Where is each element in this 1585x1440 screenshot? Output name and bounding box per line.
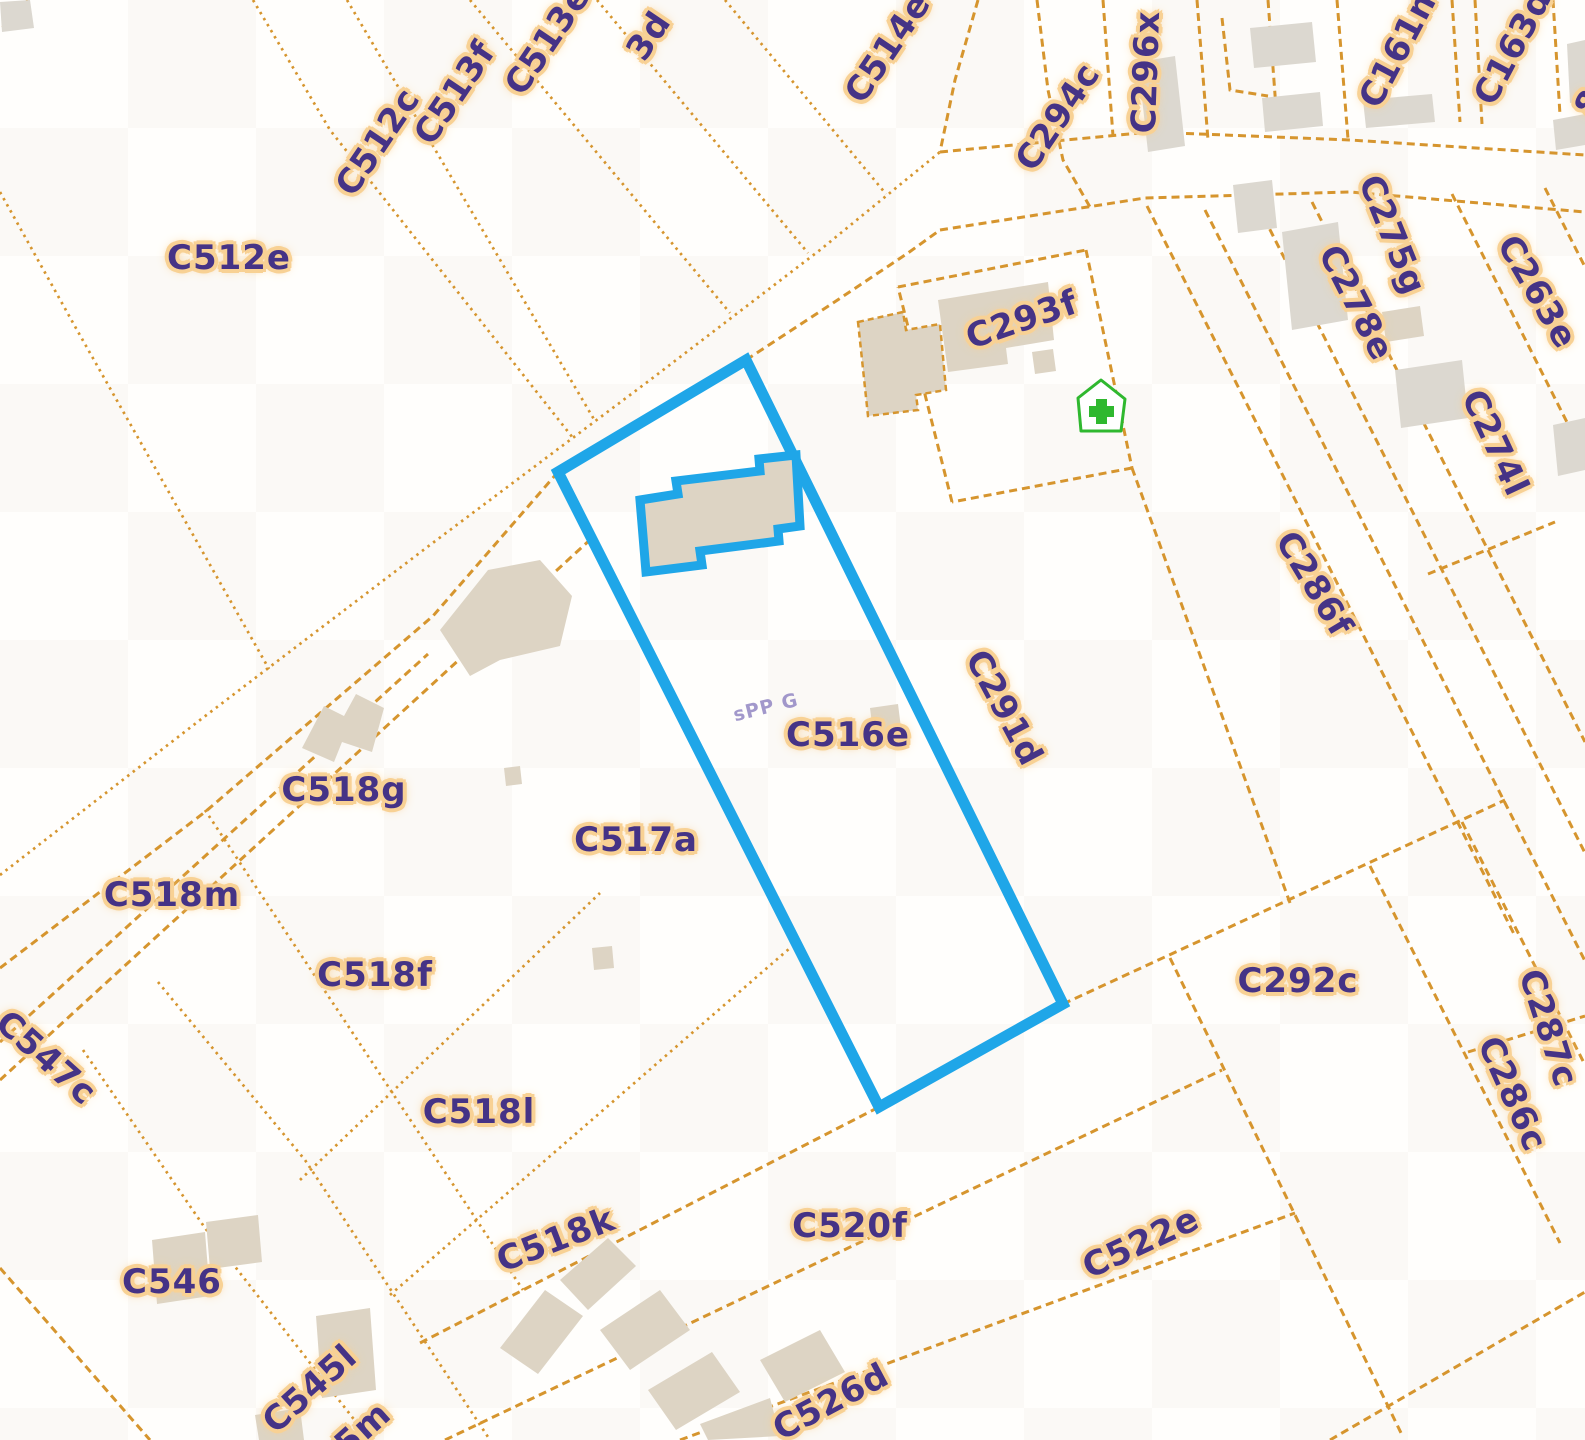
building-footprint bbox=[600, 1290, 690, 1370]
parcel-label: C520f bbox=[792, 1209, 908, 1243]
map-canvas[interactable]: sPP GC512eC512cC513fC513e3dC514eC294cC29… bbox=[0, 0, 1585, 1440]
parcel-boundary-line bbox=[1452, 0, 1460, 122]
parcel-boundary-line bbox=[1197, 0, 1208, 140]
parcel-boundary-line bbox=[300, 893, 600, 1180]
building-footprint bbox=[1250, 22, 1316, 68]
building-footprint bbox=[1262, 92, 1323, 132]
parcel-label: C516e bbox=[786, 718, 910, 752]
poi-cross-bar bbox=[1089, 406, 1114, 417]
parcel-boundary-line bbox=[1330, 1292, 1585, 1440]
building-footprint bbox=[858, 312, 946, 416]
parcel-boundary-line bbox=[470, 0, 730, 313]
parcel-label: C518f bbox=[317, 958, 433, 992]
building-footprint bbox=[440, 560, 572, 676]
parcel-boundary-line bbox=[1103, 0, 1113, 136]
building-footprint bbox=[302, 694, 384, 762]
parcel-boundary-line bbox=[1337, 0, 1348, 139]
parcel-label: C518m bbox=[104, 878, 240, 912]
parcel-boundary-line bbox=[1086, 250, 1132, 468]
building-footprint bbox=[504, 766, 522, 786]
parcel-boundary-line bbox=[680, 1213, 1295, 1440]
parcel-boundary-line bbox=[940, 0, 978, 152]
building-footprint bbox=[500, 1290, 583, 1374]
building-footprint bbox=[592, 946, 614, 970]
parcel-boundary-line bbox=[1170, 958, 1403, 1437]
building-footprint bbox=[206, 1215, 262, 1269]
building-footprint bbox=[1553, 114, 1585, 150]
building-footprint bbox=[1553, 418, 1585, 476]
building-footprint bbox=[0, 0, 34, 32]
parcel-boundary-line bbox=[1553, 0, 1560, 115]
parcel-label: C518l bbox=[423, 1095, 536, 1129]
parcel-boundary-line bbox=[952, 468, 1132, 502]
selected-building-outline bbox=[640, 455, 800, 572]
building-footprint bbox=[1233, 180, 1277, 233]
building-footprint bbox=[1395, 360, 1468, 428]
parcel-label: C512e bbox=[167, 241, 291, 275]
parcel-boundary-line bbox=[0, 472, 558, 968]
parcel-boundary-line bbox=[1132, 468, 1290, 903]
pharmacy-house-icon[interactable] bbox=[1078, 380, 1125, 431]
parcel-boundary-line bbox=[898, 250, 1086, 287]
parcel-boundary-line bbox=[1545, 188, 1585, 267]
parcel-label: C518g bbox=[281, 773, 406, 807]
building-footprint bbox=[1032, 349, 1056, 374]
parcel-label: C292c bbox=[1237, 964, 1358, 998]
parcel-boundary-line bbox=[1370, 866, 1560, 1243]
parcel-label: C546 bbox=[122, 1265, 222, 1299]
parcel-label: C517a bbox=[574, 823, 698, 857]
parcel-label: C296x bbox=[1127, 10, 1165, 134]
parcel-boundary-line bbox=[1428, 522, 1555, 574]
